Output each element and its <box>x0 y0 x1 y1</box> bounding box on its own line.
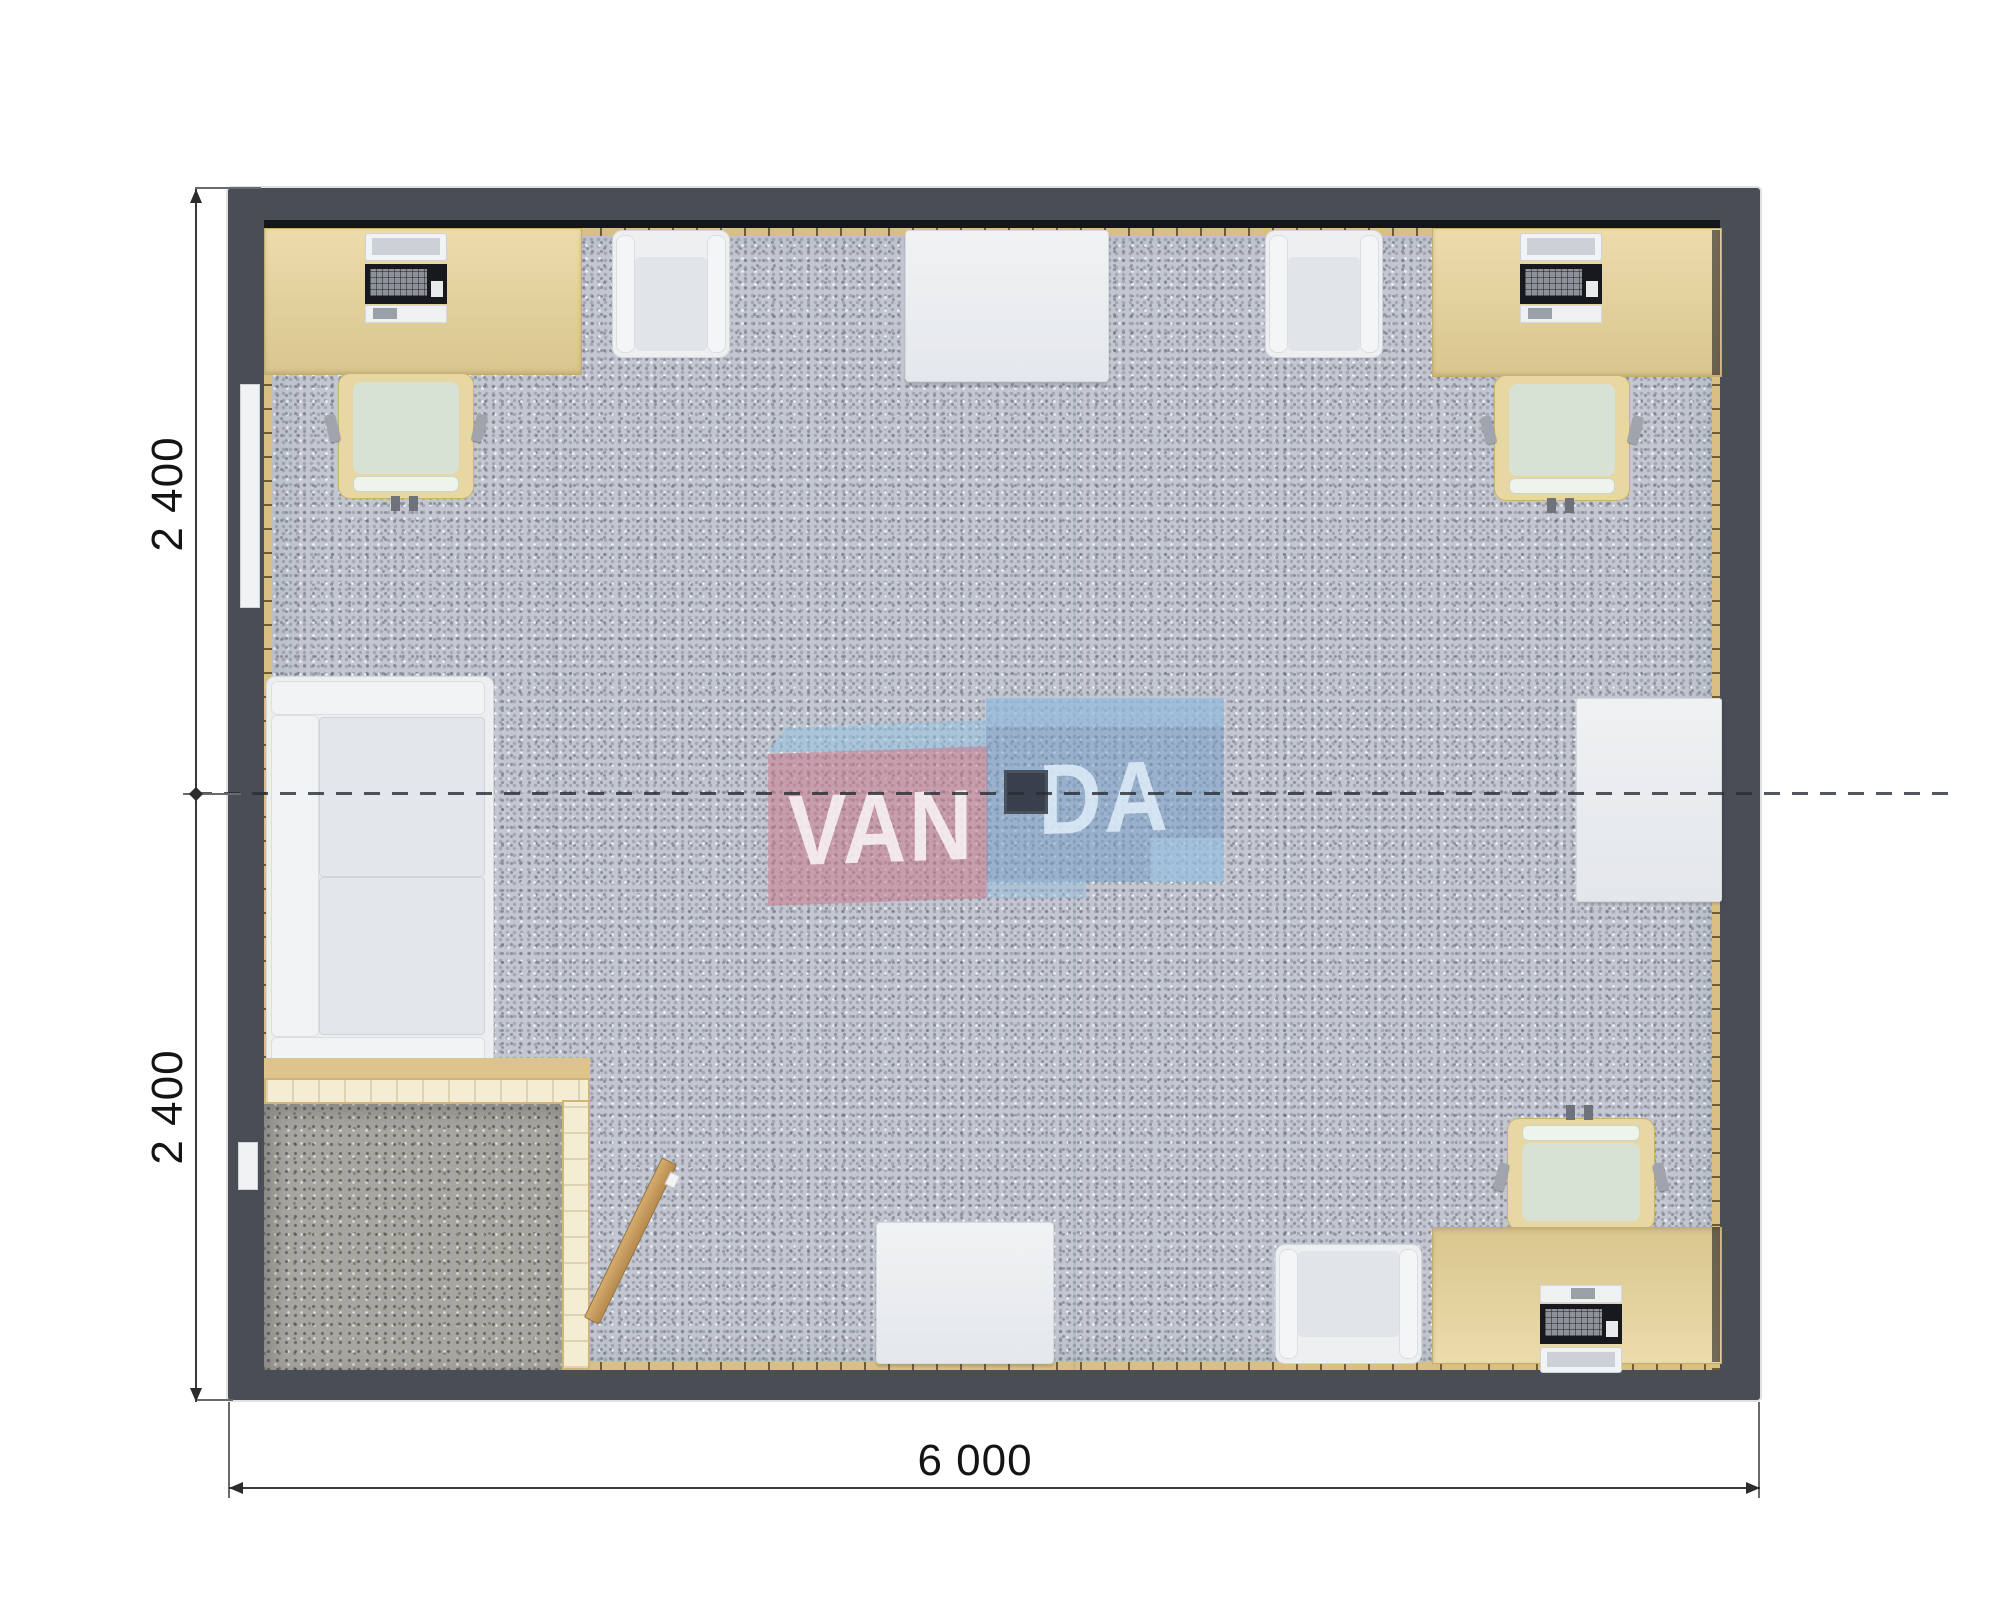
office-chair-bottom-right <box>1507 1118 1655 1230</box>
sofa <box>266 676 494 1076</box>
watermark-blue-box-top <box>986 698 1224 726</box>
chair-caster <box>391 496 400 511</box>
chair-armrest <box>1480 415 1497 445</box>
computer-monitor <box>1540 1347 1622 1373</box>
computer-station-bottom-right <box>1540 1285 1622 1373</box>
chair-armrest <box>1493 1162 1510 1192</box>
dimension-arrow-down <box>190 1388 202 1402</box>
armchair-armrest <box>1279 1249 1298 1359</box>
chair-caster <box>1565 498 1574 513</box>
chair-caster <box>1547 498 1556 513</box>
chair-seat <box>1509 384 1615 476</box>
chair-caster <box>409 496 418 511</box>
entry-door-leaf <box>584 1157 677 1324</box>
office-chair-top-left <box>338 373 474 499</box>
watermark-blue-box-corner <box>1150 838 1224 882</box>
chair-seat <box>1522 1143 1640 1221</box>
monitor-screen <box>1527 238 1595 255</box>
computer-monitor <box>365 233 447 261</box>
dimension-tick-middle <box>189 787 203 801</box>
armchair-seat <box>635 257 707 351</box>
watermark-text-left: VAN <box>787 775 976 882</box>
dimension-arrow-left <box>229 1482 243 1494</box>
chair-backrest <box>1522 1125 1640 1141</box>
chair-armrest <box>1627 415 1644 445</box>
notepad <box>431 281 443 297</box>
desk-wall-shadow <box>1712 230 1720 375</box>
armchair-armrest <box>707 235 726 353</box>
storage-cabinet-right <box>1576 698 1722 902</box>
meeting-table-bottom <box>876 1222 1054 1364</box>
chair-backrest <box>353 476 459 492</box>
sofa-backrest <box>271 715 319 1037</box>
vestibule-floor <box>264 1104 562 1370</box>
watermark-box-top-face <box>768 720 988 752</box>
computer-monitor <box>1520 233 1602 261</box>
armchair-armrest <box>616 235 635 353</box>
watermark-text-right: DA <box>1032 745 1177 850</box>
entry-wood-floor <box>264 1058 590 1080</box>
notepad <box>1586 281 1598 297</box>
guest-armchair-bottom <box>1275 1244 1422 1364</box>
armchair-armrest <box>1269 235 1288 353</box>
armchair-seat <box>1298 1251 1399 1337</box>
armchair-seat <box>1288 257 1360 351</box>
window-left-wall <box>240 384 260 608</box>
mouse-pad <box>373 308 397 319</box>
desk-mat <box>1520 305 1602 323</box>
mouse-pad <box>1571 1288 1595 1299</box>
sofa-cushion <box>319 877 485 1035</box>
chair-backrest <box>1509 478 1615 494</box>
dimension-arrow-up <box>190 189 202 203</box>
computer-station-top-right <box>1520 233 1602 323</box>
chair-seat <box>353 382 459 474</box>
meeting-table-top <box>905 230 1109 382</box>
dimension-line-horizontal <box>229 1487 1760 1489</box>
chair-armrest <box>1652 1162 1669 1192</box>
dimension-label-bottom: 6 000 <box>875 1438 1075 1484</box>
vestibule-partition-top <box>264 1078 590 1104</box>
center-axis-dashed-line <box>196 792 1952 795</box>
floor-plan-canvas: VAN DA 2 400 2 400 6 000 <box>0 0 2000 1598</box>
keyboard-tray <box>1540 1304 1622 1344</box>
computer-station-top-left <box>365 233 447 323</box>
chair-armrest <box>324 413 341 443</box>
sofa-armrest-top <box>271 681 485 715</box>
room-floor-carpet: VAN DA <box>264 220 1720 1370</box>
carpet-seam <box>1073 228 1076 1370</box>
guest-armchair-top-right <box>1265 230 1383 358</box>
armchair-armrest <box>1399 1249 1418 1359</box>
top-wall-shadow <box>264 220 1720 228</box>
dimension-label-left-lower: 2 400 <box>145 1027 191 1187</box>
dimension-label-left-upper: 2 400 <box>145 414 191 574</box>
notepad <box>1606 1321 1618 1337</box>
computer-keyboard <box>370 269 427 296</box>
chair-armrest <box>471 413 488 443</box>
monitor-screen <box>372 238 440 255</box>
dimension-arrow-right <box>1746 1482 1760 1494</box>
chair-caster <box>1584 1105 1593 1120</box>
entry-door-left-wall <box>238 1142 258 1190</box>
armchair-armrest <box>1360 235 1379 353</box>
door-handle <box>664 1172 680 1189</box>
office-chair-top-right <box>1494 375 1630 501</box>
mouse-pad <box>1528 308 1552 319</box>
watermark-pink-box <box>768 746 988 906</box>
monitor-screen <box>1547 1352 1615 1367</box>
desk-wall-shadow <box>1712 1227 1720 1362</box>
desk-mat <box>365 305 447 323</box>
extension-line-top <box>195 187 261 189</box>
keyboard-tray <box>365 264 447 304</box>
vestibule-partition-right <box>562 1100 590 1370</box>
sofa-cushion <box>319 717 485 877</box>
chair-caster <box>1566 1105 1575 1120</box>
keyboard-tray <box>1520 264 1602 304</box>
desk-mat <box>1540 1285 1622 1303</box>
vanda-watermark: VAN DA <box>760 690 1230 910</box>
computer-keyboard <box>1545 1309 1602 1336</box>
watermark-blue-box-tab <box>986 880 1086 898</box>
guest-armchair-top-left <box>612 230 730 358</box>
computer-keyboard <box>1525 269 1582 296</box>
